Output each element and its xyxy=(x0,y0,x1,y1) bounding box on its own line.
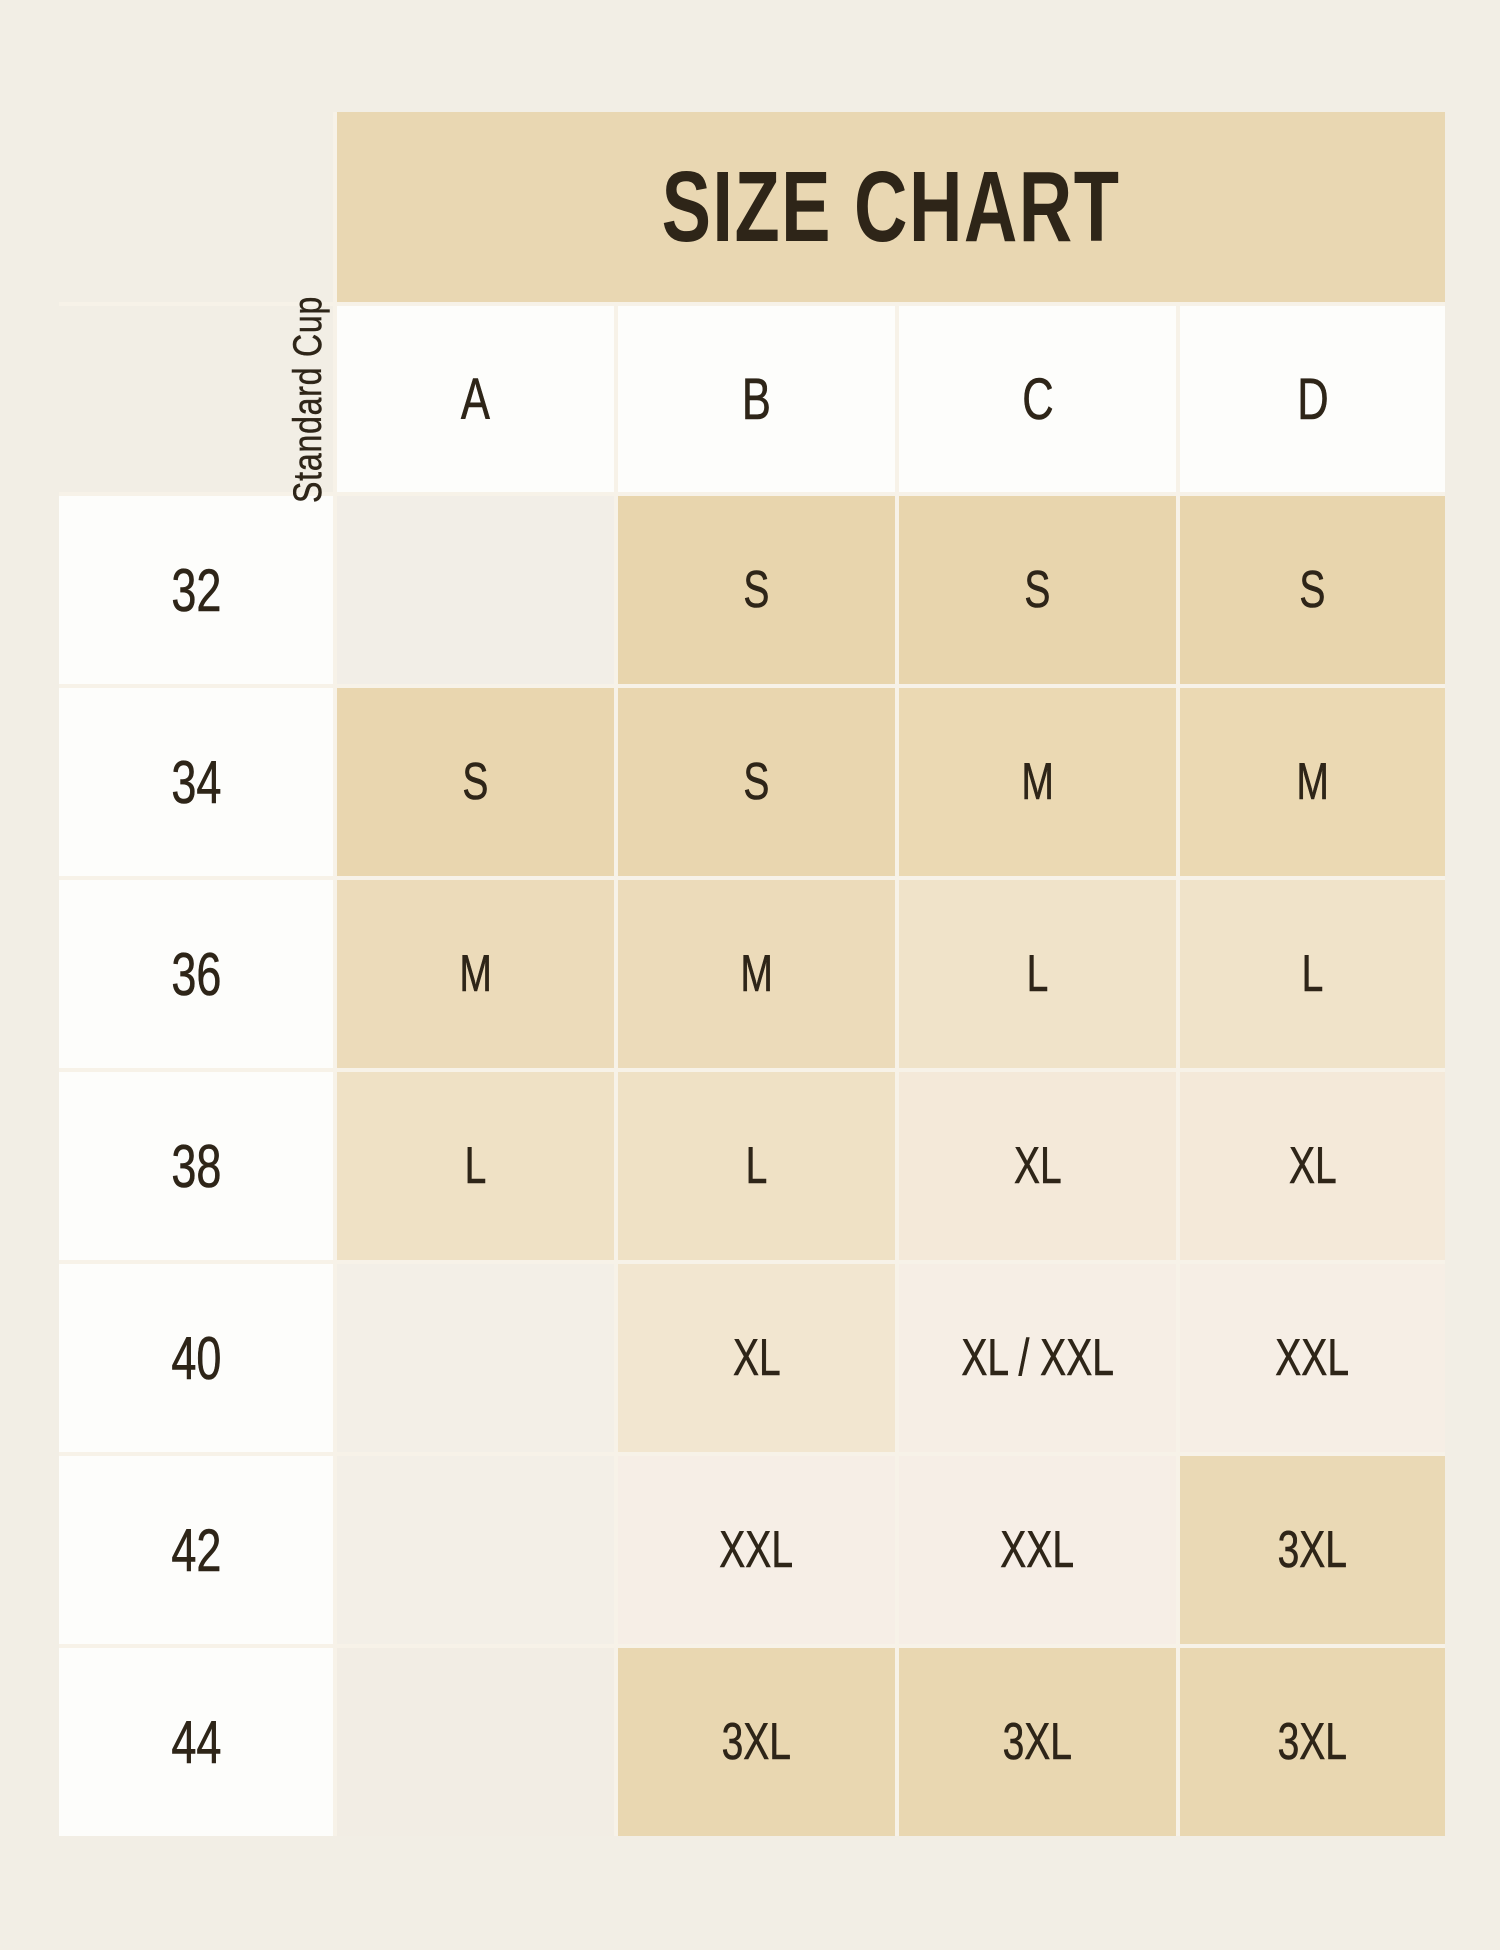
cup-header-b: B xyxy=(618,306,895,492)
size-cell-40-A xyxy=(337,1264,614,1452)
size-cell-32-B: S xyxy=(618,496,895,684)
band-label: 44 xyxy=(171,1708,221,1777)
size-cell-42-D: 3XL xyxy=(1180,1456,1445,1644)
cup-header-b-label: B xyxy=(742,366,771,433)
size-value: 3XL xyxy=(1278,1712,1347,1772)
size-cell-44-A xyxy=(337,1648,614,1836)
cup-header-c-label: C xyxy=(1022,366,1053,433)
cup-header-d-label: D xyxy=(1297,366,1328,433)
size-cell-44-D: 3XL xyxy=(1180,1648,1445,1836)
size-chart-page: SIZE CHART Standard Cup A B C D 32SSS34S… xyxy=(0,0,1500,1950)
band-label-cell-40: 40 xyxy=(59,1264,333,1452)
size-value: 3XL xyxy=(1003,1712,1072,1772)
band-label-cell-44: 44 xyxy=(59,1648,333,1836)
size-value: S xyxy=(1024,560,1050,620)
band-label: 42 xyxy=(171,1516,221,1585)
size-value: XL / XXL xyxy=(961,1328,1113,1388)
size-cell-44-C: 3XL xyxy=(899,1648,1176,1836)
size-value: XXL xyxy=(1001,1520,1075,1580)
band-label-cell-38: 38 xyxy=(59,1072,333,1260)
size-chart-title-cell: SIZE CHART xyxy=(337,112,1445,302)
cup-axis-cell: Standard Cup xyxy=(59,306,333,492)
size-value: S xyxy=(1299,560,1325,620)
size-value: L xyxy=(465,1136,487,1196)
table-corner-spacer xyxy=(59,112,333,302)
band-label: 36 xyxy=(171,940,221,1009)
size-value: 3XL xyxy=(722,1712,791,1772)
size-value: S xyxy=(462,752,488,812)
band-label-cell-34: 34 xyxy=(59,688,333,876)
size-value: L xyxy=(1027,944,1049,1004)
band-label: 38 xyxy=(171,1132,221,1201)
size-value: XL xyxy=(733,1328,781,1388)
band-label: 40 xyxy=(171,1324,221,1393)
size-value: L xyxy=(1302,944,1324,1004)
size-cell-32-D: S xyxy=(1180,496,1445,684)
size-cell-40-D: XXL xyxy=(1180,1264,1445,1452)
size-value: XL xyxy=(1014,1136,1062,1196)
size-cell-34-A: S xyxy=(337,688,614,876)
size-cell-40-B: XL xyxy=(618,1264,895,1452)
size-cell-38-A: L xyxy=(337,1072,614,1260)
band-label-cell-42: 42 xyxy=(59,1456,333,1644)
size-cell-38-C: XL xyxy=(899,1072,1176,1260)
cup-header-c: C xyxy=(899,306,1176,492)
size-cell-32-C: S xyxy=(899,496,1176,684)
size-cell-40-C: XL / XXL xyxy=(899,1264,1176,1452)
size-cell-32-A xyxy=(337,496,614,684)
size-cell-42-B: XXL xyxy=(618,1456,895,1644)
size-value: XXL xyxy=(1276,1328,1350,1388)
band-label-cell-32: 32 xyxy=(59,496,333,684)
size-cell-42-A xyxy=(337,1456,614,1644)
size-chart-title: SIZE CHART xyxy=(662,150,1121,265)
size-cell-42-C: XXL xyxy=(899,1456,1176,1644)
size-value: S xyxy=(743,752,769,812)
size-cell-34-C: M xyxy=(899,688,1176,876)
size-value: 3XL xyxy=(1278,1520,1347,1580)
size-value: M xyxy=(1021,752,1053,812)
cup-header-a: A xyxy=(337,306,614,492)
band-label: 34 xyxy=(171,748,221,817)
size-cell-36-B: M xyxy=(618,880,895,1068)
size-value: XL xyxy=(1289,1136,1337,1196)
size-cell-38-D: XL xyxy=(1180,1072,1445,1260)
size-cell-34-D: M xyxy=(1180,688,1445,876)
size-value: XXL xyxy=(720,1520,794,1580)
size-cell-36-A: M xyxy=(337,880,614,1068)
cup-header-a-label: A xyxy=(461,366,490,433)
size-value: M xyxy=(740,944,772,1004)
band-label: 32 xyxy=(171,556,221,625)
cup-header-d: D xyxy=(1180,306,1445,492)
size-chart-table: SIZE CHART Standard Cup A B C D 32SSS34S… xyxy=(59,112,1445,1836)
size-cell-34-B: S xyxy=(618,688,895,876)
size-value: L xyxy=(746,1136,768,1196)
size-cell-38-B: L xyxy=(618,1072,895,1260)
size-cell-36-D: L xyxy=(1180,880,1445,1068)
size-value: S xyxy=(743,560,769,620)
size-cell-44-B: 3XL xyxy=(618,1648,895,1836)
size-cell-36-C: L xyxy=(899,880,1176,1068)
cup-axis-label: Standard Cup xyxy=(286,295,331,502)
band-label-cell-36: 36 xyxy=(59,880,333,1068)
size-value: M xyxy=(459,944,491,1004)
size-value: M xyxy=(1296,752,1328,812)
